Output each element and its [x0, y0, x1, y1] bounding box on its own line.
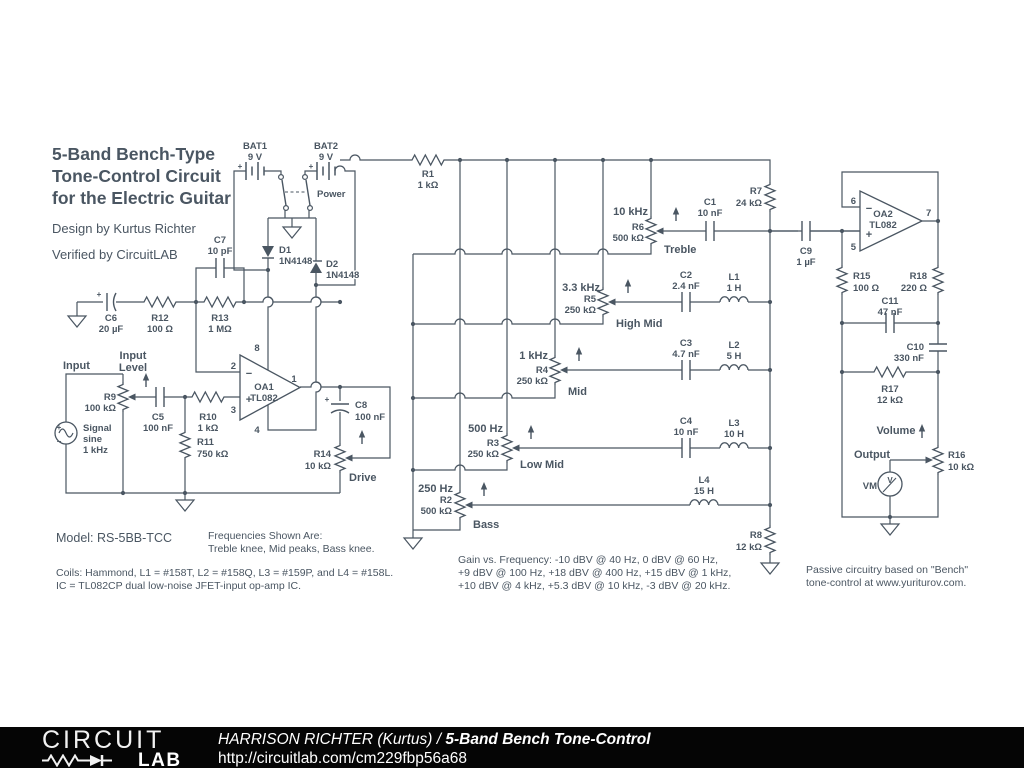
oa1-pin1: 1	[291, 374, 297, 385]
label-l3: L3	[728, 418, 739, 429]
treble-freq: 10 kHz	[613, 206, 648, 218]
power-labels: BAT1 9 V + BAT2 9 V + Power D1 1N4148 D2…	[238, 141, 360, 281]
gain-note-line2: +9 dBV @ 100 Hz, +18 dBV @ 400 Hz, +15 d…	[458, 567, 731, 579]
label-c6: C6	[105, 313, 117, 324]
label-r12: R12	[151, 313, 168, 324]
label-l1-value: 1 H	[727, 283, 742, 294]
pot-r4-icon	[550, 355, 560, 385]
c8-plus: +	[325, 395, 330, 404]
cap-c7-icon	[216, 258, 224, 278]
preamp-symbols	[55, 258, 365, 511]
circuitlab-schematic-page: 5-Band Bench-Type Tone-Control Circuit f…	[0, 0, 1024, 768]
oa2-name: OA2	[873, 209, 893, 220]
label-r10-value: 1 kΩ	[198, 423, 219, 434]
label-r4-value: 250 kΩ	[517, 376, 549, 387]
mid-name: Mid	[568, 386, 587, 398]
label-c9: C9	[800, 246, 812, 257]
label-input: Input	[63, 360, 90, 372]
frequencies-note-line2: Treble knee, Mid peaks, Bass knee.	[208, 543, 375, 555]
label-r12-value: 100 Ω	[147, 324, 173, 335]
label-r6: R6	[632, 222, 644, 233]
schematic-title-line1: 5-Band Bench-Type	[52, 144, 215, 164]
cap-c5-icon	[156, 387, 164, 407]
lowmid-freq: 500 Hz	[468, 423, 503, 435]
adjust-arrow-icon	[481, 482, 487, 496]
label-l4: L4	[698, 475, 710, 486]
bass-freq: 250 Hz	[418, 483, 453, 495]
pot-r14-icon	[335, 443, 345, 473]
label-r9-value: 100 kΩ	[85, 403, 117, 414]
label-r7-value: 24 kΩ	[736, 198, 762, 209]
inductor-l2-icon	[720, 365, 748, 370]
label-c7-value: 10 pF	[208, 246, 233, 257]
label-l3-value: 10 H	[724, 429, 744, 440]
frequencies-note-line1: Frequencies Shown Are:	[208, 530, 322, 542]
label-bat1: BAT1	[243, 141, 268, 152]
designer-credit: Design by Kurtus Richter	[52, 221, 196, 236]
wiper-arrow-icon	[608, 299, 616, 306]
label-r3-value: 250 kΩ	[468, 449, 500, 460]
label-c4: C4	[680, 416, 693, 427]
label-d1-value: 1N4148	[279, 256, 312, 267]
ground-icon	[283, 227, 301, 238]
label-r10: R10	[199, 412, 216, 423]
cap-c9-icon	[802, 221, 810, 241]
label-r15-value: 100 Ω	[853, 283, 879, 294]
label-c8-value: 100 nF	[355, 412, 385, 423]
adjust-arrow-icon	[359, 430, 365, 444]
label-r14: R14	[314, 449, 332, 460]
resistor-r17-icon	[870, 367, 910, 377]
switch-terminal	[308, 206, 313, 211]
label-r13-value: 1 MΩ	[208, 324, 232, 335]
label-r13: R13	[211, 313, 228, 324]
label-r16-value: 10 kΩ	[948, 462, 974, 473]
schematic-canvas: 5-Band Bench-Type Tone-Control Circuit f…	[0, 0, 1024, 727]
oa1-minus: −	[246, 368, 252, 380]
label-c3-value: 4.7 nF	[672, 349, 700, 360]
oa1-pin8: 8	[254, 343, 259, 354]
oa2-plus: +	[866, 229, 872, 241]
gain-note-line3: +10 dBV @ 4 kHz, +5.3 dBV @ 10 kHz, -3 d…	[458, 580, 730, 592]
pot-r6-icon	[646, 216, 656, 246]
label-c11-value: 47 nF	[878, 307, 903, 318]
oa2-pin5: 5	[851, 242, 857, 253]
bat1-plus: +	[238, 162, 243, 171]
cap-c2-icon	[682, 292, 690, 312]
schematic-title-line2: Tone-Control Circuit	[52, 166, 221, 186]
label-r2: R2	[440, 495, 452, 506]
adjust-arrow-icon	[528, 425, 534, 439]
label-r8: R8	[750, 530, 762, 541]
oa1-pin2: 2	[231, 361, 236, 372]
footer-schematic-title: 5-Band Bench Tone-Control	[445, 731, 650, 748]
logo-lab-text: LAB	[138, 751, 182, 768]
label-r6-value: 500 kΩ	[613, 233, 645, 244]
label-r1-value: 1 kΩ	[418, 180, 439, 191]
switch-terminal	[279, 175, 284, 180]
label-c2-value: 2.4 nF	[672, 281, 700, 292]
inductor-l4-icon	[690, 500, 718, 505]
label-r17: R17	[881, 384, 898, 395]
footer-author: HARRISON RICHTER (Kurtus)	[218, 731, 432, 748]
label-r4: R4	[536, 365, 549, 376]
wiper-arrow-icon	[345, 455, 353, 462]
footer-byline: HARRISON RICHTER (Kurtus) / 5-Band Bench…	[218, 731, 651, 768]
label-c2: C2	[680, 270, 692, 281]
label-input-level2: Level	[119, 362, 147, 374]
label-c5-value: 100 nF	[143, 423, 173, 434]
label-r5: R5	[584, 294, 597, 305]
label-c7: C7	[214, 235, 226, 246]
oa2-pin7: 7	[926, 208, 931, 219]
label-bat2: BAT2	[314, 141, 338, 152]
title-block: 5-Band Bench-Type Tone-Control Circuit f…	[52, 144, 231, 262]
label-source2: sine	[83, 434, 102, 445]
resistor-r10-icon	[188, 392, 228, 402]
wiper-arrow-icon	[512, 445, 520, 452]
source-minus: −	[57, 437, 62, 446]
label-r5-value: 250 kΩ	[565, 305, 597, 316]
label-c1: C1	[704, 197, 717, 208]
label-l2-value: 5 H	[727, 351, 742, 362]
label-c10-value: 330 nF	[894, 353, 924, 364]
adjust-arrow-icon	[143, 373, 149, 387]
label-c5: C5	[152, 412, 165, 423]
footer-bar: CIRCUIT LAB HARRISON RICHTER (Kurtus) / …	[0, 727, 1024, 768]
pot-r9-icon	[118, 382, 128, 412]
label-r8-value: 12 kΩ	[736, 542, 762, 553]
gain-note-line1: Gain vs. Frequency: -10 dBV @ 40 Hz, 0 d…	[458, 554, 718, 566]
switch-terminal	[303, 175, 308, 180]
footer-url: http://circuitlab.com/cm229fbp56a68	[218, 750, 651, 768]
adjust-arrow-icon	[576, 347, 582, 361]
label-c4-value: 10 nF	[674, 427, 699, 438]
ground-icon	[68, 316, 86, 327]
oa1-part: TL082	[250, 393, 277, 404]
label-l1: L1	[728, 272, 740, 283]
resistor-r18-icon	[933, 265, 943, 295]
label-r11-value: 750 kΩ	[197, 449, 229, 460]
source-plus: +	[57, 423, 62, 432]
oa2-pin6: 6	[851, 196, 856, 207]
lowmid-name: Low Mid	[520, 459, 564, 471]
oa1-pin3: 3	[231, 405, 236, 416]
oa1-plus: +	[246, 394, 252, 406]
bass-name: Bass	[473, 519, 499, 531]
adjust-arrow-icon	[673, 207, 679, 221]
oa2-minus: −	[866, 203, 872, 215]
inductor-l3-icon	[720, 443, 748, 448]
label-r18: R18	[910, 271, 927, 282]
voltmeter-v: V	[887, 476, 893, 485]
cap-c10-icon	[929, 344, 947, 351]
label-r18-value: 220 Ω	[901, 283, 927, 294]
highmid-freq: 3.3 kHz	[562, 282, 600, 294]
wiper-arrow-icon	[465, 502, 473, 509]
label-c3: C3	[680, 338, 692, 349]
resistor-diode-icon	[42, 754, 136, 767]
ground-icon	[761, 563, 779, 574]
resistor-r15-icon	[837, 265, 847, 295]
coils-note: Coils: Hammond, L1 = #158T, L2 = #158Q, …	[56, 567, 393, 579]
resistor-r13-icon	[200, 297, 240, 307]
cap-c3-icon	[682, 360, 690, 380]
label-c10: C10	[907, 342, 924, 353]
oa2-part: TL082	[869, 220, 896, 231]
resistor-r8-icon	[765, 525, 775, 555]
pot-r16-icon	[933, 445, 943, 475]
label-r11: R11	[197, 437, 215, 448]
schematic-title-line3: for the Electric Guitar	[52, 188, 231, 208]
filter-labels: C1 10 nF C2 2.4 nF L1 1 H C3 4.7 nF L2 5…	[672, 197, 744, 497]
cap-c4-icon	[682, 438, 690, 458]
ground-icon	[176, 500, 194, 511]
label-l4-value: 15 H	[694, 486, 714, 497]
bat2-plus: +	[309, 162, 314, 171]
adjust-arrow-icon	[919, 424, 925, 438]
resistor-r11-icon	[180, 430, 190, 460]
label-input-level1: Input	[120, 350, 147, 362]
label-r14-value: 10 kΩ	[305, 461, 331, 472]
oa1-name: OA1	[254, 382, 274, 393]
label-r1: R1	[422, 169, 435, 180]
wiper-arrow-icon	[128, 394, 136, 401]
resistor-r1-icon	[408, 155, 448, 165]
oa1-pin4: 4	[254, 425, 260, 436]
diode-d1-icon	[262, 246, 274, 257]
wiper-arrow-icon	[656, 228, 664, 235]
output-labels: C9 1 µF 6 − OA2 TL082 + 5 7 R15 100 Ω R1…	[796, 196, 974, 492]
label-r7: R7	[750, 186, 762, 197]
label-output: Output	[854, 449, 890, 461]
c6-plus: +	[97, 290, 102, 299]
label-r17-value: 12 kΩ	[877, 395, 903, 406]
switch-terminal	[284, 206, 289, 211]
label-d2-value: 1N4148	[326, 270, 359, 281]
label-r15: R15	[853, 271, 871, 282]
resistor-r12-icon	[140, 297, 180, 307]
treble-name: Treble	[664, 244, 696, 256]
wiper-arrow-icon	[926, 457, 934, 464]
ground-icon	[404, 538, 422, 549]
pot-r3-icon	[502, 433, 512, 463]
label-vm: VM	[863, 481, 877, 492]
label-c1-value: 10 nF	[698, 208, 723, 219]
wiper-arrow-icon	[560, 367, 568, 374]
footer-separator: /	[432, 731, 445, 748]
matrix-wires	[340, 155, 860, 563]
label-c6-value: 20 µF	[99, 324, 124, 335]
label-power-switch: Power	[317, 189, 346, 200]
ic-note: IC = TL082CP dual low-noise JFET-input o…	[56, 580, 301, 592]
drive-labels: C8 100 nF + R14 10 kΩ Drive	[305, 395, 385, 484]
ground-icon	[881, 524, 899, 535]
label-d2: D2	[326, 259, 338, 270]
verified-credit: Verified by CircuitLAB	[52, 247, 178, 262]
label-c11: C11	[882, 296, 900, 307]
label-r9: R9	[104, 392, 116, 403]
resistor-r7-icon	[765, 182, 775, 212]
inductor-l1-icon	[720, 297, 748, 302]
passive-note-line2: tone-control at www.yuriturov.com.	[806, 577, 966, 589]
label-volume: Volume	[877, 425, 916, 437]
label-d1: D1	[279, 245, 292, 256]
adjust-arrow-icon	[625, 279, 631, 293]
label-r3: R3	[487, 438, 499, 449]
label-l2: L2	[728, 340, 739, 351]
label-bat1-value: 9 V	[248, 152, 263, 163]
highmid-name: High Mid	[616, 318, 662, 330]
label-bat2-value: 9 V	[319, 152, 334, 163]
model-note: Model: RS-5BB-TCC	[56, 531, 172, 545]
notes-block: Model: RS-5BB-TCC Frequencies Shown Are:…	[56, 530, 968, 592]
label-r2-value: 500 kΩ	[421, 506, 453, 517]
label-c9-value: 1 µF	[796, 257, 815, 268]
label-c8: C8	[355, 400, 367, 411]
circuitlab-logo: CIRCUIT LAB	[42, 728, 182, 768]
label-r16: R16	[948, 450, 965, 461]
pot-r2-icon	[455, 490, 465, 520]
label-source3: 1 kHz	[83, 445, 108, 456]
cap-c1-icon	[706, 221, 714, 241]
mid-freq: 1 kHz	[519, 350, 548, 362]
battery-bat1-icon	[246, 162, 264, 180]
preamp-labels: C6 20 µF + R12 100 Ω R13 1 MΩ C7 10 pF I…	[57, 235, 233, 460]
label-source1: Signal	[83, 423, 112, 434]
footer-title-line: HARRISON RICHTER (Kurtus) / 5-Band Bench…	[218, 731, 651, 749]
passive-note-line1: Passive circuitry based on "Bench"	[806, 564, 968, 576]
battery-bat2-icon	[317, 162, 335, 180]
label-drive: Drive	[349, 472, 377, 484]
